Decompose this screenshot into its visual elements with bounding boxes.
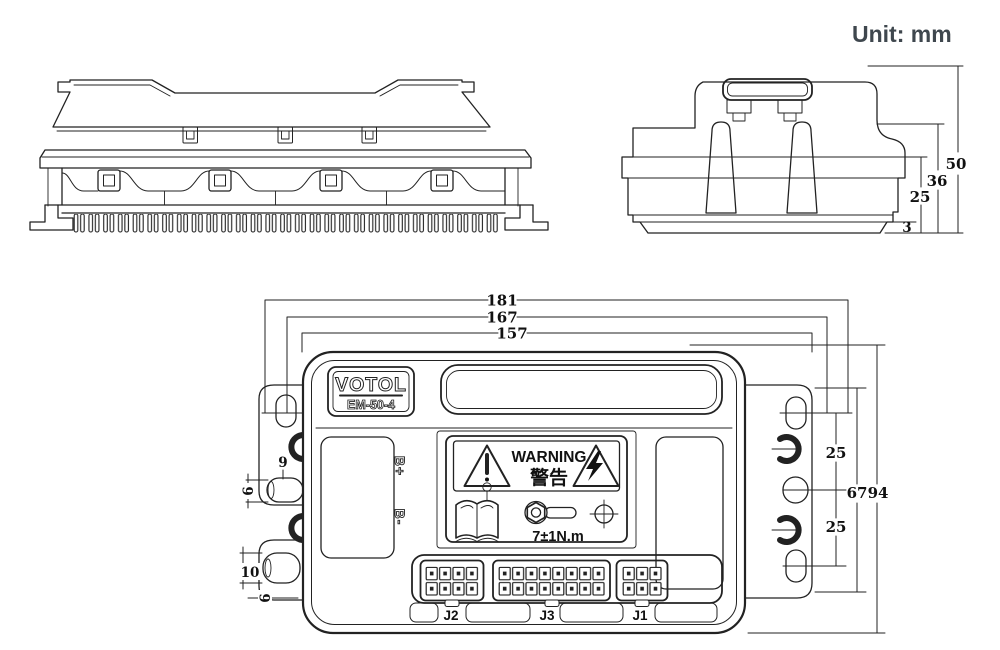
dim-25-end-label: 25 [910, 188, 931, 206]
dim-10-label: 10 [241, 565, 260, 581]
warning-text-en: WARNING [512, 449, 587, 466]
dim-50-label: 50 [946, 155, 967, 173]
mount-clip [209, 170, 231, 191]
lid-clip-tab [278, 127, 293, 143]
mount-clip [98, 170, 120, 191]
connector-j3-label: J3 [539, 608, 555, 623]
dim-94-label: 94 [868, 484, 889, 502]
connector-j1-label: J1 [632, 608, 648, 623]
torque-value: 7±1N.m [532, 529, 583, 545]
mount-clip [431, 170, 453, 191]
terminal-b-minus-label: B- [392, 509, 408, 526]
terminal-b-plus-label: B+ [392, 456, 408, 476]
end-view-dimensions: 50 36 25 3 [868, 66, 966, 236]
dim-157-label: 157 [496, 325, 527, 343]
mount-slot [276, 395, 296, 427]
unit-label: Unit: mm [852, 21, 952, 47]
model-label: EM-50-4 [347, 398, 395, 412]
terminal-stud-lower [263, 553, 300, 583]
dim-6-upper-label: 6 [241, 486, 257, 495]
lid-clip-tab [183, 127, 198, 143]
dim-25-top-label: 25 [826, 444, 847, 462]
bottom-view: VOTOL EM-50-4 B+ B- WARNING 警告 [239, 292, 888, 634]
dim-9-label: 9 [278, 455, 287, 471]
dim-3-label: 3 [902, 220, 911, 236]
standoff-post [706, 122, 736, 213]
dim-25-bottom-label: 25 [826, 518, 847, 536]
side-view [30, 80, 548, 234]
mount-clip [320, 170, 342, 191]
end-view: 50 36 25 3 [622, 66, 966, 236]
mount-foot-right [505, 205, 548, 230]
dim-181-label: 181 [486, 292, 517, 310]
mount-foot-left [30, 205, 73, 230]
dim-67-label: 67 [847, 484, 868, 502]
dim-6-lower-label: 6 [258, 593, 274, 602]
warning-text-zh: 警告 [530, 466, 568, 489]
standoff-post [787, 122, 817, 213]
connector-j2-label: J2 [443, 608, 458, 623]
brand-logo: VOTOL [335, 374, 407, 396]
lid-clip-tab [362, 127, 377, 143]
heatsink-pin-row [72, 214, 499, 234]
controller-dimension-drawing: Unit: mm [0, 0, 1000, 650]
